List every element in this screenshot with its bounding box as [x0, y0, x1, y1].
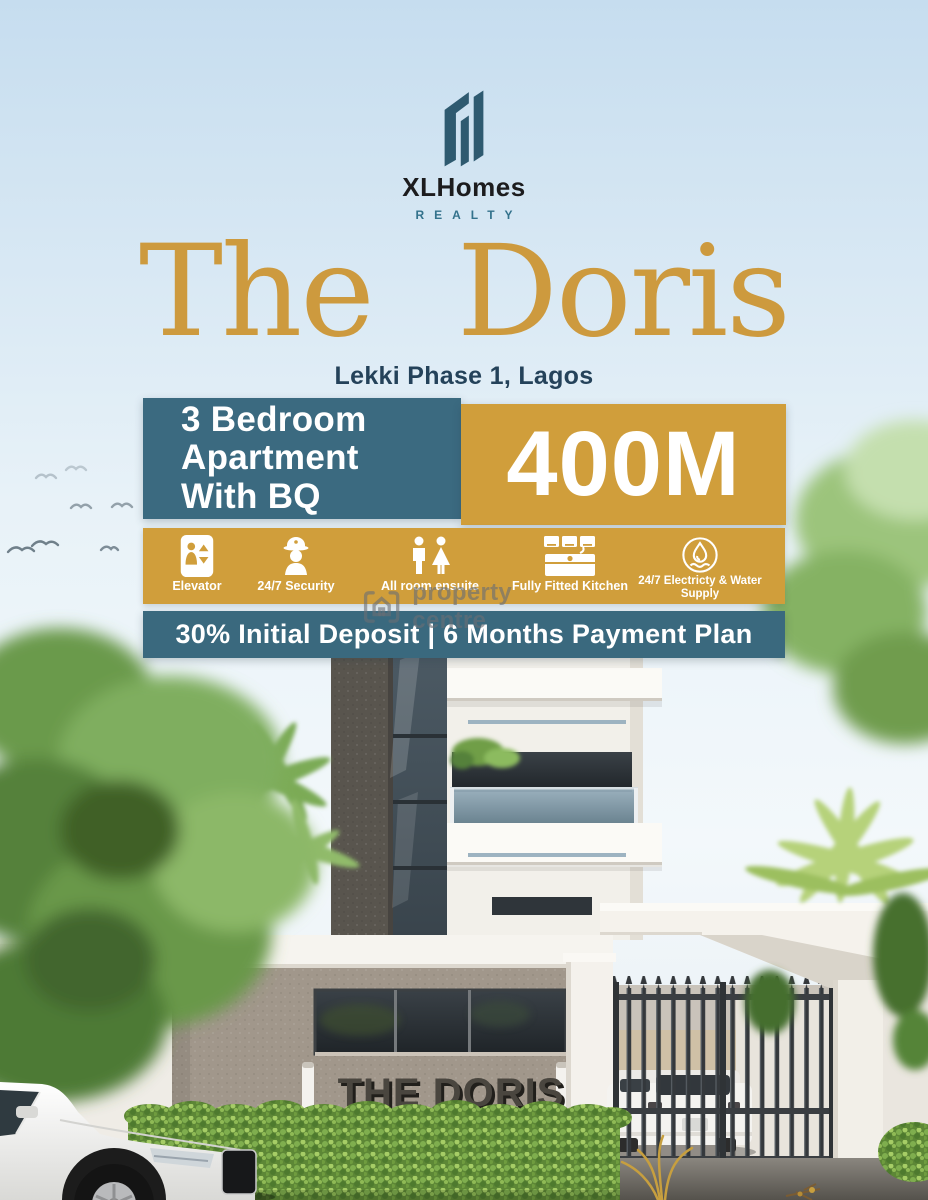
brand-name: XLHomes	[0, 172, 928, 203]
unit-line: With BQ	[181, 478, 461, 516]
property-centre-logo	[360, 590, 403, 624]
property-title: The Doris	[0, 226, 928, 358]
price-value: 400M	[506, 412, 740, 517]
feature-label: 24/7 Security	[257, 579, 334, 593]
watermark: property centre	[360, 588, 590, 626]
feature-label: Elevator	[172, 579, 221, 593]
feature-label: 24/7 Electricty & Water Supply	[637, 575, 763, 601]
security-guard-icon	[277, 535, 315, 577]
price-box: 400M	[461, 404, 786, 525]
brand-logo: XLHomes REALTY	[0, 84, 928, 222]
kitchen-icon	[543, 535, 597, 577]
elevator-icon	[180, 535, 214, 577]
property-location: Lekki Phase 1, Lagos	[0, 362, 928, 391]
watermark-text: property centre	[412, 579, 590, 635]
feature-security: 24/7 Security	[243, 535, 349, 593]
unit-line: 3 Bedroom	[181, 401, 461, 439]
buildings-icon	[438, 84, 490, 168]
water-electricity-icon	[681, 535, 719, 575]
feature-elevator: Elevator	[153, 535, 241, 593]
flyer-content: XLHomes REALTY The Doris Lekki Phase 1, …	[0, 0, 928, 1200]
property-flyer: THE DORIS THE DORIS	[0, 0, 928, 1200]
unit-line: Apartment	[181, 439, 461, 477]
ensuite-icon	[407, 535, 453, 577]
unit-description-box: 3 Bedroom Apartment With BQ	[143, 398, 461, 519]
feature-electric-water: 24/7 Electricty & Water Supply	[637, 535, 763, 601]
